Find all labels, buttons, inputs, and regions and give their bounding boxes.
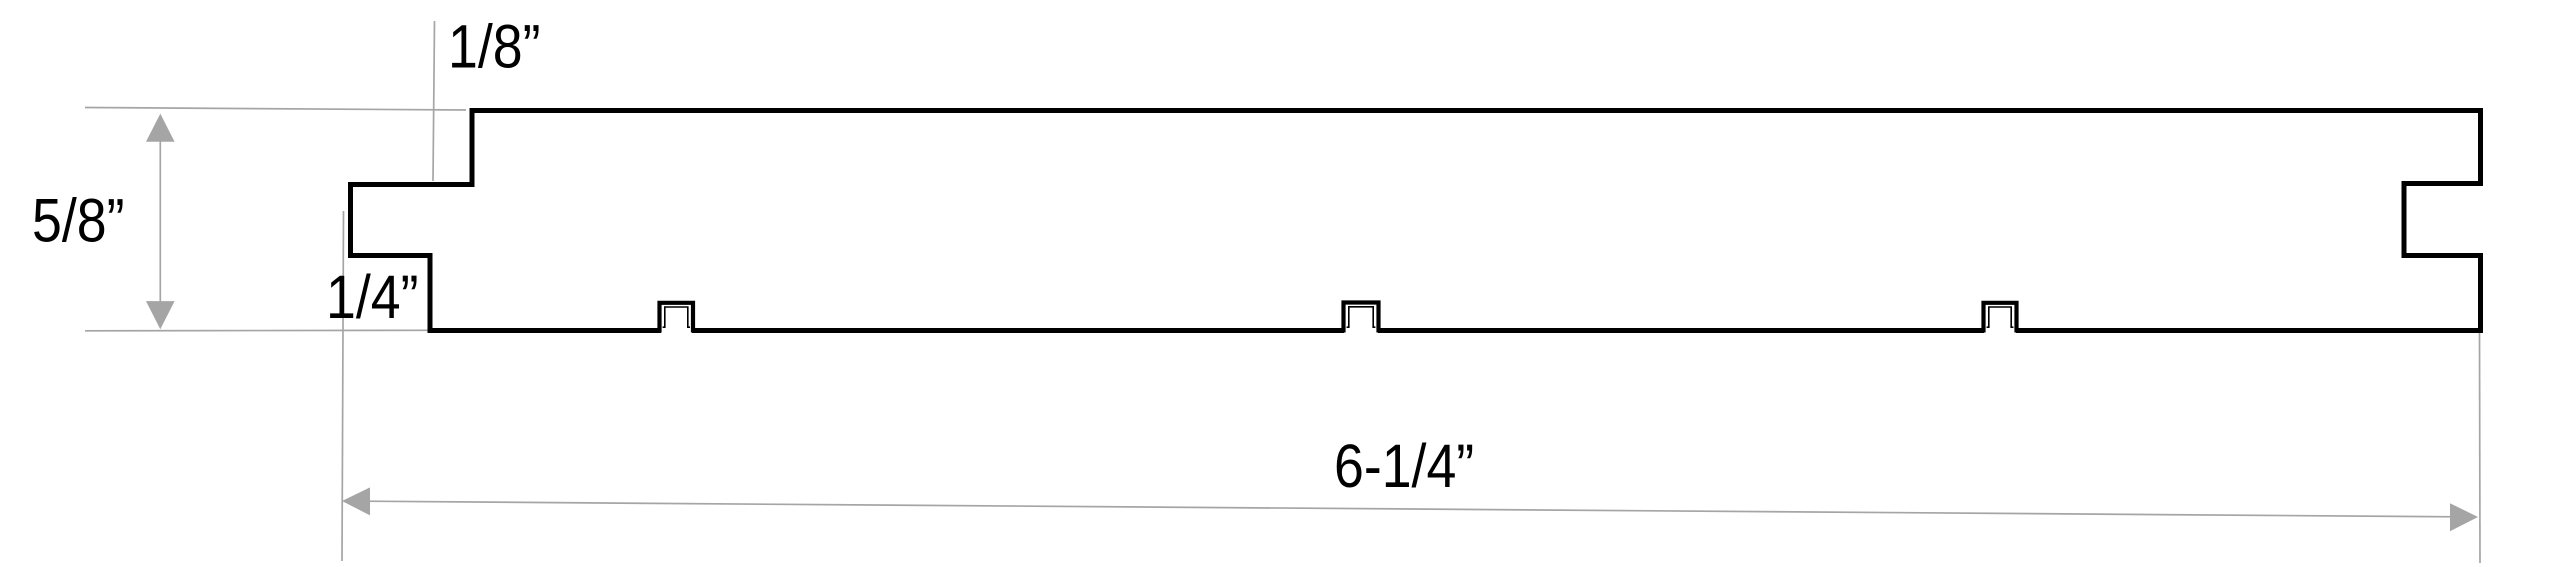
svg-text:1/8”: 1/8” [448,13,540,81]
svg-text:5/8”: 5/8” [32,187,124,255]
svg-text:1/4”: 1/4” [326,264,418,332]
svg-text:6-1/4”: 6-1/4” [1334,433,1474,501]
